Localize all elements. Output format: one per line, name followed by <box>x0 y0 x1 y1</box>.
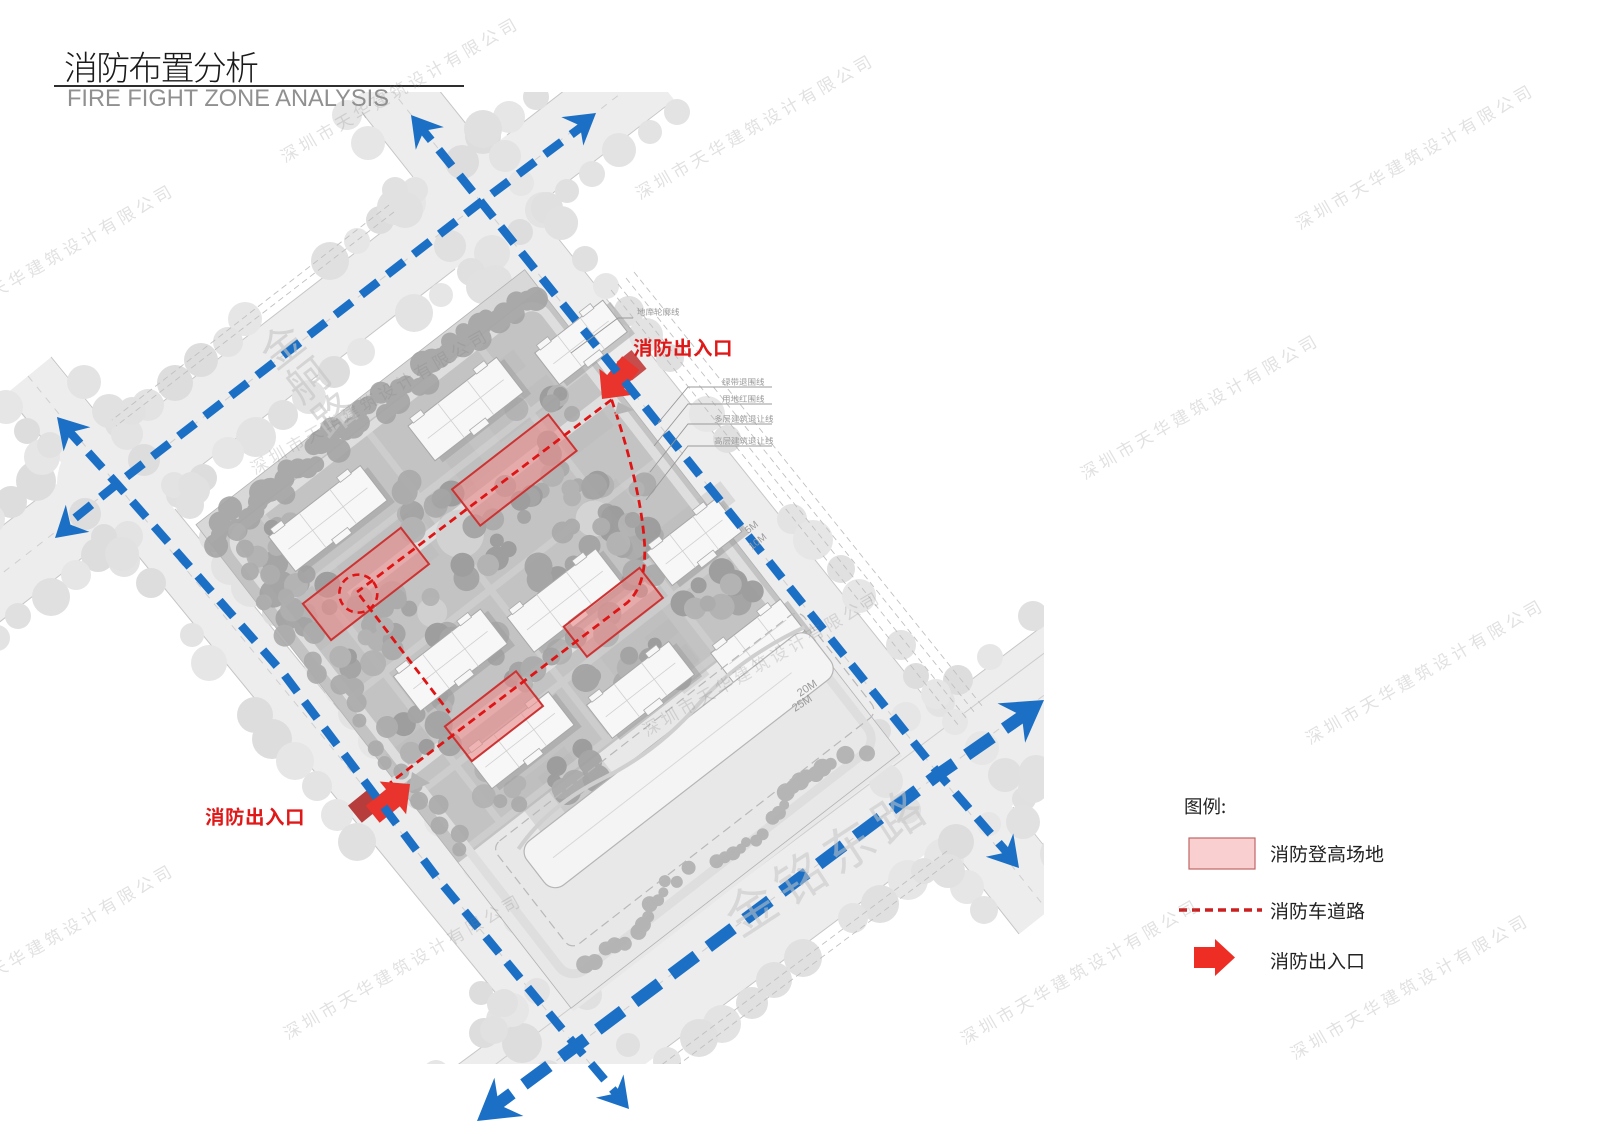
svg-text:FIRE FIGHT ZONE ANALYSIS: FIRE FIGHT ZONE ANALYSIS <box>67 85 389 112</box>
